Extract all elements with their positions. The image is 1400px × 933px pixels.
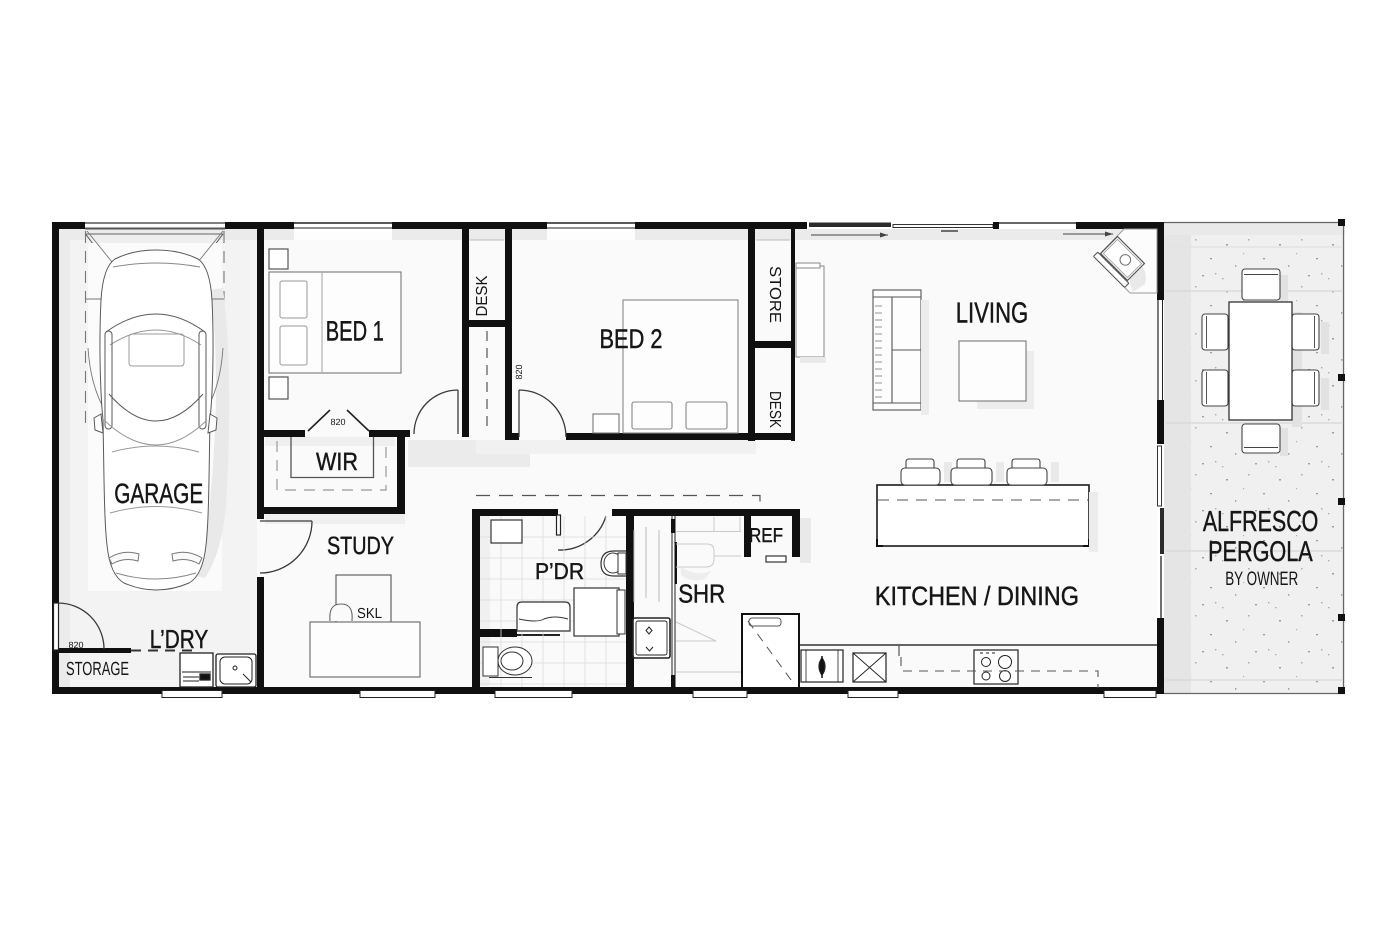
svg-text:STORE: STORE [766,266,783,323]
svg-text:SKL: SKL [357,606,382,622]
svg-text:820: 820 [514,364,524,379]
svg-text:PERGOLA: PERGOLA [1208,536,1313,568]
svg-text:BED 2: BED 2 [600,324,663,354]
svg-text:KITCHEN / DINING: KITCHEN / DINING [875,581,1079,611]
svg-text:REF: REF [749,525,783,547]
svg-text:P’DR: P’DR [535,558,584,584]
svg-text:STUDY: STUDY [327,532,394,560]
svg-text:SHR: SHR [678,579,725,609]
svg-text:LIVING: LIVING [956,298,1029,330]
svg-text:820: 820 [68,640,83,650]
svg-text:ALFRESCO: ALFRESCO [1203,506,1319,538]
svg-text:BY OWNER: BY OWNER [1225,568,1298,590]
svg-text:WIR: WIR [316,448,358,476]
svg-text:L’DRY: L’DRY [150,624,209,654]
svg-text:STORAGE: STORAGE [66,659,129,680]
svg-text:BED 1: BED 1 [326,316,384,347]
svg-text:DESK: DESK [766,391,783,428]
svg-text:GARAGE: GARAGE [114,478,203,509]
svg-text:DESK: DESK [474,275,491,316]
svg-text:820: 820 [330,417,345,427]
